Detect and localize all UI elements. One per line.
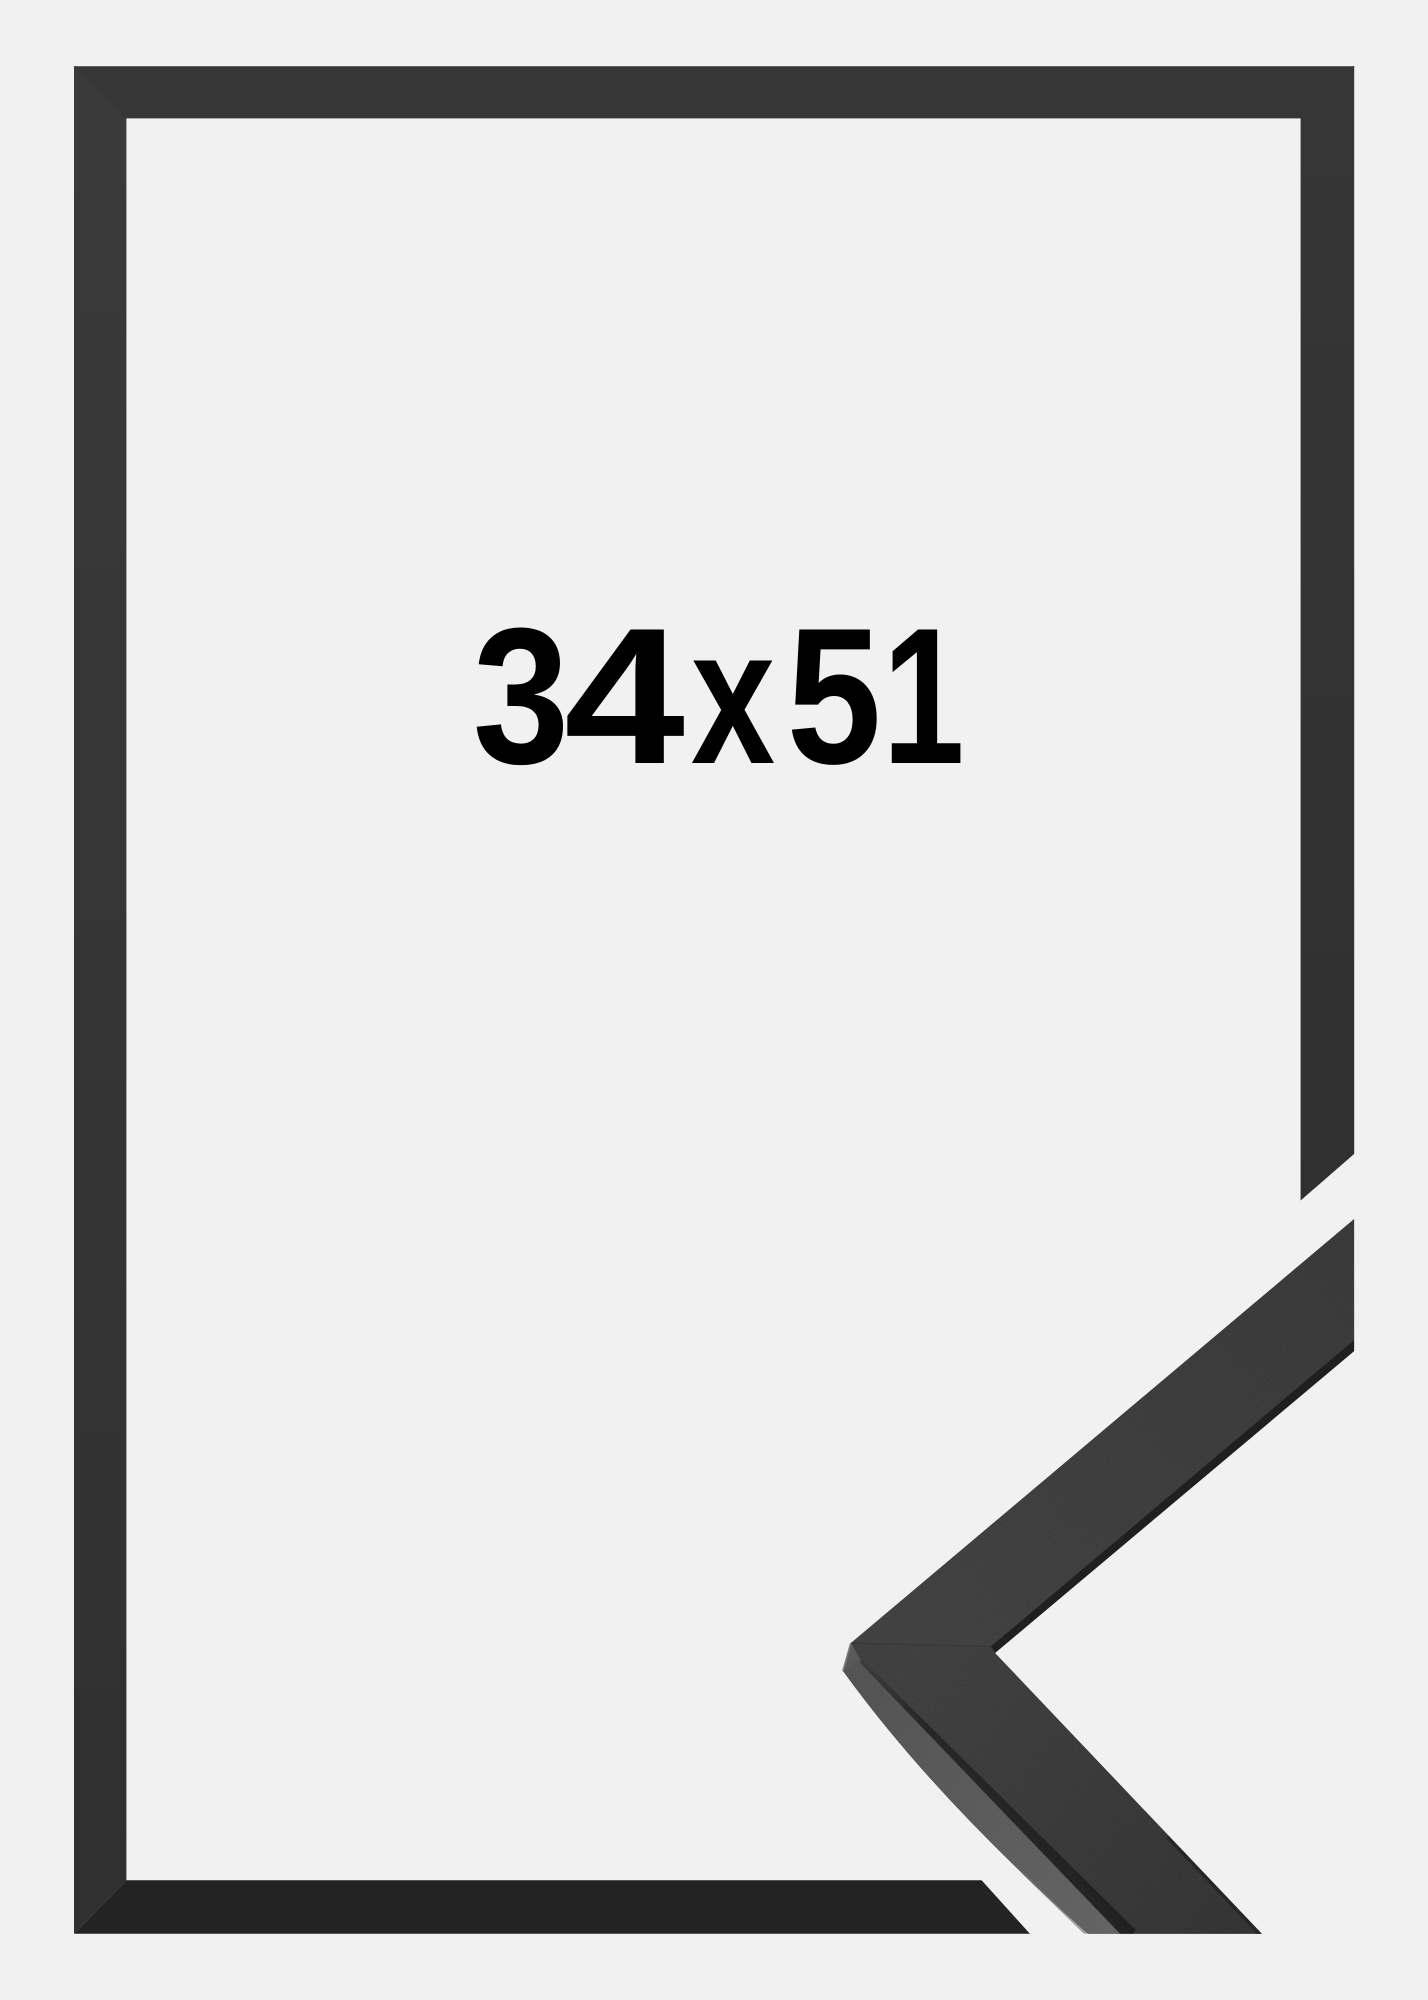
svg-text:1: 1 xyxy=(882,587,964,804)
svg-text:5: 5 xyxy=(787,588,882,805)
svg-text:x: x xyxy=(691,588,775,804)
svg-text:4: 4 xyxy=(564,588,685,805)
svg-text:3: 3 xyxy=(473,588,570,805)
